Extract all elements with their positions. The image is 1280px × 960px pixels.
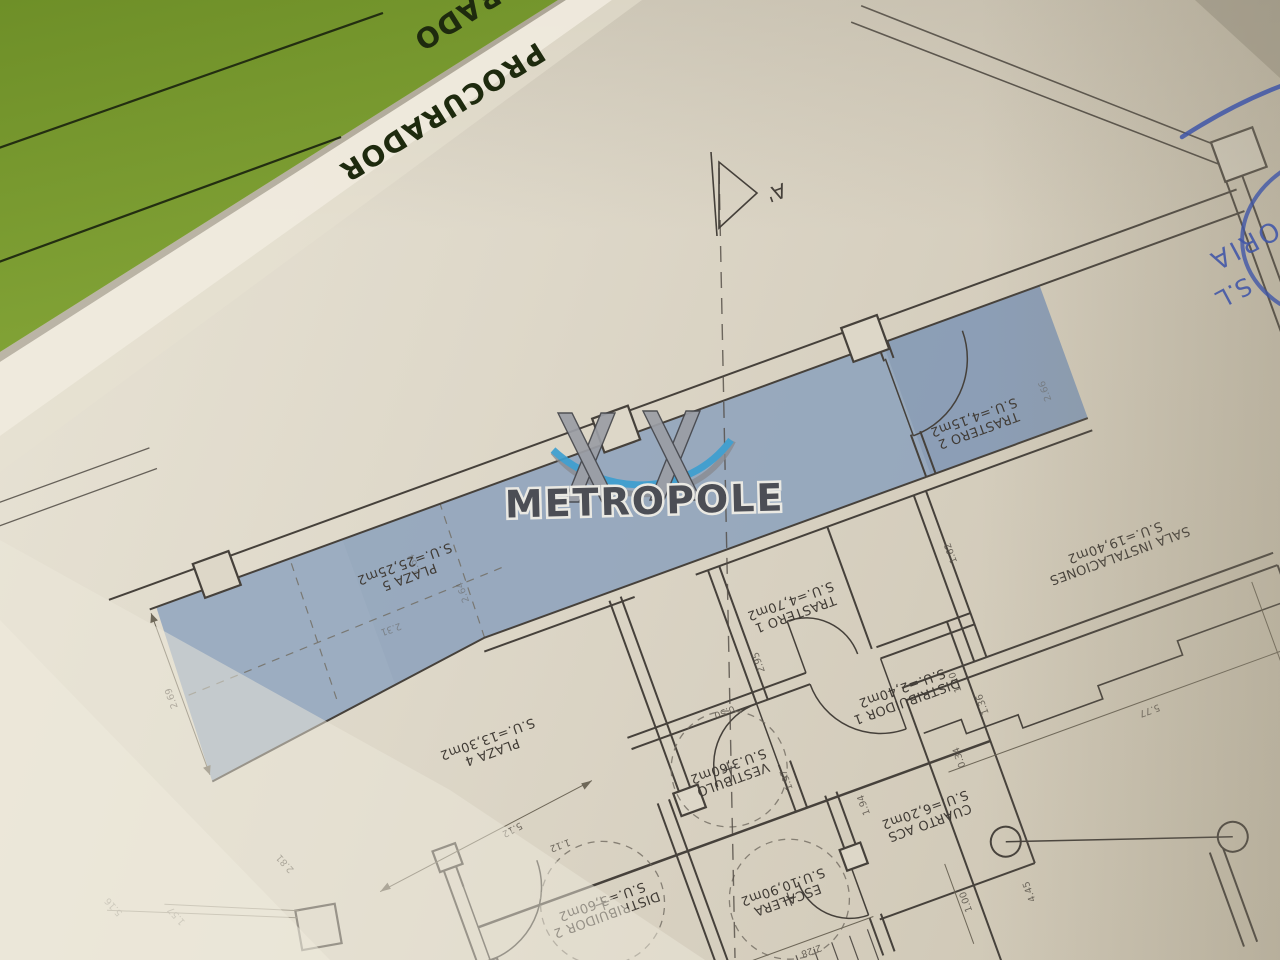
photographed-floor-plan: 2.31 2.64 1.64 2.66 2.95 1.20 1.36 0.34 …	[0, 0, 1280, 960]
watermark: METROPOLE	[504, 411, 785, 527]
section-line-group: A'	[711, 152, 790, 958]
watermark-text: METROPOLE	[504, 475, 785, 526]
section-cut-line	[719, 168, 735, 958]
photo-overlays: A' ORIA S.L RADO PROCURADOR	[0, 0, 1280, 960]
